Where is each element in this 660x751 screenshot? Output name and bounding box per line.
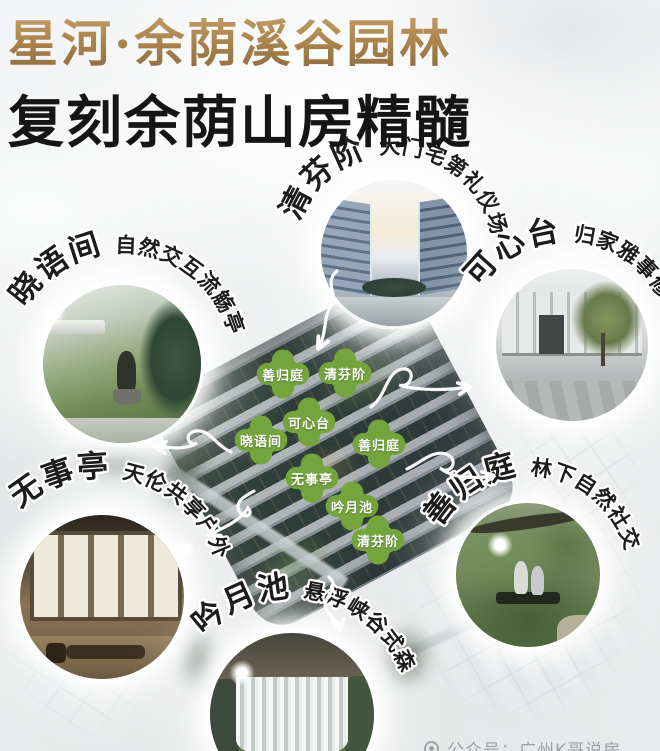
foliage-blob xyxy=(372,612,442,702)
title-block: 星河·余荫溪谷园林 复刻余荫山房精髓 xyxy=(8,4,472,159)
map-badge-qingfenjie-1: 清芬阶 xyxy=(318,348,372,398)
pavilion-table xyxy=(66,645,145,660)
map-badge-label: 晓语间 xyxy=(240,431,282,450)
waterfall-rocks-right xyxy=(344,676,377,751)
grove-bench xyxy=(496,592,559,604)
photo-circle-wushiting-pavilion xyxy=(16,511,188,683)
garden-path xyxy=(43,418,201,443)
waterfall-top-structure xyxy=(210,633,374,682)
grove-paving xyxy=(557,615,604,650)
photo-circle-xiaoyujian-garden xyxy=(39,281,205,447)
courtyard-paving xyxy=(496,381,648,421)
map-badge-label: 可心台 xyxy=(288,413,330,432)
watermark: 公众号：广州K哥说房 xyxy=(424,736,621,751)
map-badge-label: 清芬阶 xyxy=(324,364,366,383)
photo-circle-qingfenjie-gate xyxy=(317,176,471,330)
grove-person xyxy=(531,566,544,595)
waterfall-cascade xyxy=(236,677,348,751)
garden-sculpture xyxy=(117,351,136,392)
courtyard-doorway xyxy=(539,315,565,355)
pavilion-chair xyxy=(46,643,66,663)
pavilion-windows xyxy=(30,531,182,621)
map-badge-label: 清芬阶 xyxy=(357,531,399,550)
map-badge-qingfenjie-2: 清芬阶 xyxy=(351,515,405,565)
waterfall-rocks-left xyxy=(207,679,240,751)
garden-planter xyxy=(113,389,141,405)
poster: 星河·余荫溪谷园林 复刻余荫山房精髓 xyxy=(0,0,660,751)
map-badge-label: 吟月池 xyxy=(331,497,373,516)
photo-circle-yinyuechi-waterfall xyxy=(206,629,378,751)
watermark-text: 公众号：广州K哥说房 xyxy=(447,736,621,751)
map-badge-shanguiting-2: 善归庭 xyxy=(352,419,406,469)
poster-title: 星河·余荫溪谷园林 xyxy=(8,4,472,76)
gate-building-right xyxy=(418,193,471,296)
garden-trees xyxy=(135,291,205,425)
grove-person xyxy=(514,561,528,594)
garden-pergola xyxy=(48,320,105,334)
courtyard-tree xyxy=(563,272,651,366)
map-badge-kexintai: 可心台 xyxy=(282,397,336,447)
watermark-logo-icon xyxy=(424,741,439,751)
gate-trees xyxy=(362,278,426,297)
gate-building-left xyxy=(317,196,373,296)
map-badge-xiaoyujian: 晓语间 xyxy=(234,415,288,465)
courtyard-tree-trunk xyxy=(601,333,606,366)
photo-circle-shanguiting-grove xyxy=(452,499,604,651)
photo-circle-kexintai-courtyard xyxy=(492,265,652,425)
poster-subtitle: 复刻余荫山房精髓 xyxy=(8,78,472,159)
map-badge-label: 善归庭 xyxy=(262,365,304,384)
map-badge-label: 善归庭 xyxy=(358,435,400,454)
map-badge-shanguiting-1: 善归庭 xyxy=(256,349,310,399)
gate-plaza xyxy=(321,297,467,326)
